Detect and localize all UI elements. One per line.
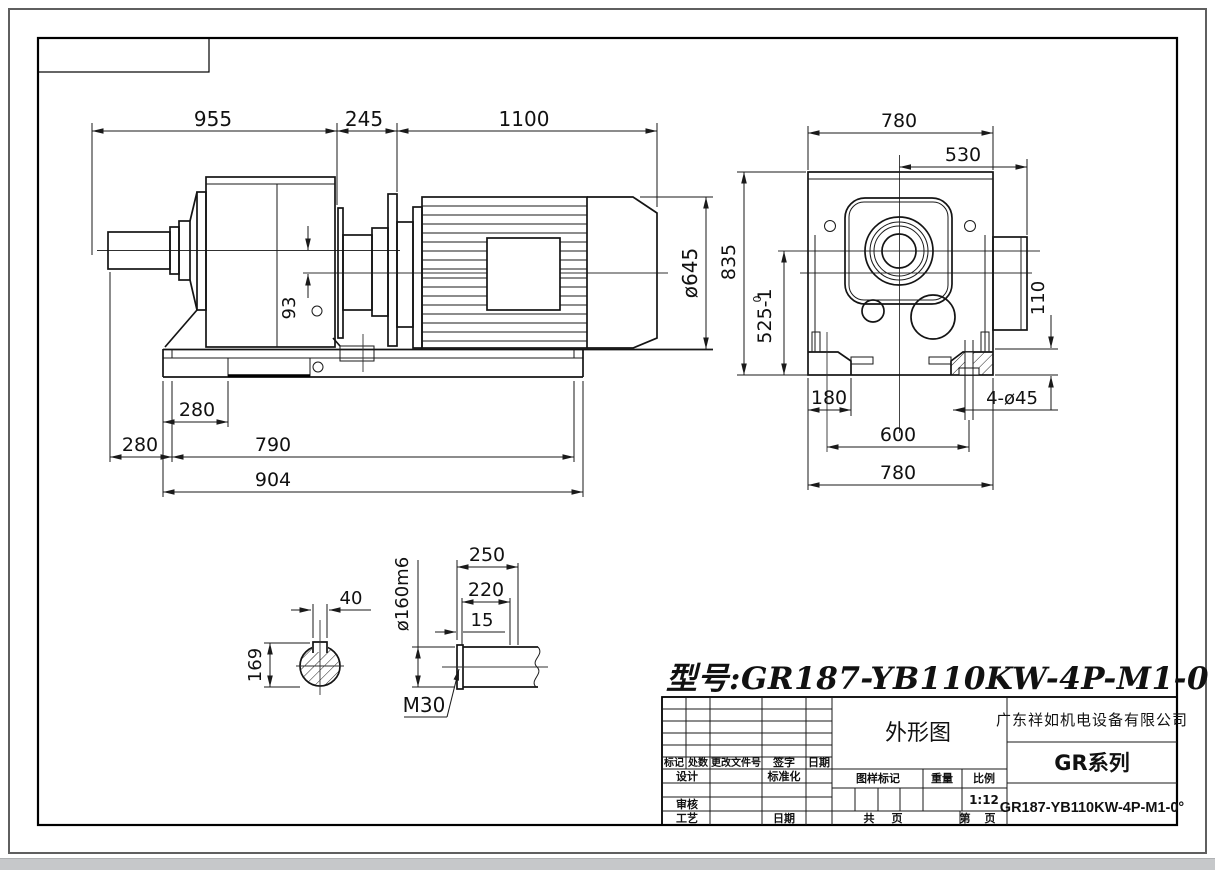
dim-label-180: 180: [811, 387, 847, 409]
dim-label-645: ø645: [678, 248, 702, 298]
junction-box: [487, 238, 560, 310]
dim-label-1100: 1100: [499, 107, 550, 131]
drawing-canvas: 955 245 1100 ø645 93: [0, 0, 1215, 870]
dim-label-40: 40: [340, 588, 363, 609]
tb-scale-value: 1:12: [969, 793, 999, 807]
dim-label-790: 790: [255, 434, 291, 456]
tb-page2: 页: [985, 812, 996, 825]
tb-craft: 工艺: [676, 811, 698, 825]
dim-label-160m6: ø160m6: [392, 557, 413, 631]
dim-label-220: 220: [468, 579, 504, 601]
tb-weight: 重量: [931, 771, 953, 785]
tb-design: 设计: [676, 769, 698, 783]
tb-change-doc: 更改文件号: [711, 756, 761, 769]
dim-label-780-bottom: 780: [880, 462, 916, 484]
dim-label-904: 904: [255, 469, 291, 491]
dim-label-835: 835: [718, 244, 740, 280]
tb-total: 共: [864, 811, 875, 825]
tb-mark: 标记: [663, 756, 684, 769]
window-bottom-bar: [0, 858, 1215, 870]
dim-label-280-inner: 280: [179, 399, 215, 421]
dim-label-110: 110: [1028, 281, 1049, 315]
tb-no: 第: [960, 811, 971, 825]
dim-label-245: 245: [345, 107, 383, 131]
tb-date: 日期: [808, 755, 830, 769]
tb-drawing-name: 外形图: [885, 721, 951, 746]
dim-label-4xd45: 4-ø45: [986, 388, 1038, 409]
tb-date2: 日期: [773, 811, 795, 825]
tb-company: 广东祥如机电设备有限公司: [996, 712, 1188, 729]
tb-count: 处数: [687, 756, 709, 769]
dim-label-955: 955: [194, 107, 232, 131]
dim-label-525-tol: 0: [751, 296, 764, 303]
tb-ratio: 比例: [973, 771, 995, 785]
tb-page: 页: [892, 812, 903, 825]
dim-label-15: 15: [471, 610, 494, 631]
model-title: 型号:GR187-YB110KW-4P-M1-0: [666, 661, 1209, 697]
tb-standardize: 标准化: [767, 769, 801, 783]
dim-label-280-outer: 280: [122, 434, 158, 456]
cad-drawing-page: 955 245 1100 ø645 93: [0, 0, 1215, 870]
tb-model: GR187-YB110KW-4P-M1-0°: [1000, 800, 1185, 816]
tb-sign: 签字: [772, 755, 795, 769]
tb-check: 审核: [676, 797, 698, 811]
dim-label-m30: M30: [403, 693, 446, 717]
tb-series: GR系列: [1054, 751, 1129, 775]
dim-label-530: 530: [945, 144, 981, 166]
dim-label-169: 169: [245, 648, 266, 682]
dim-label-600: 600: [880, 424, 916, 446]
tb-drawing-mark: 图样标记: [856, 771, 900, 785]
dim-label-250: 250: [469, 544, 505, 566]
dim-label-93: 93: [279, 297, 300, 320]
dim-label-780-top: 780: [881, 110, 917, 132]
